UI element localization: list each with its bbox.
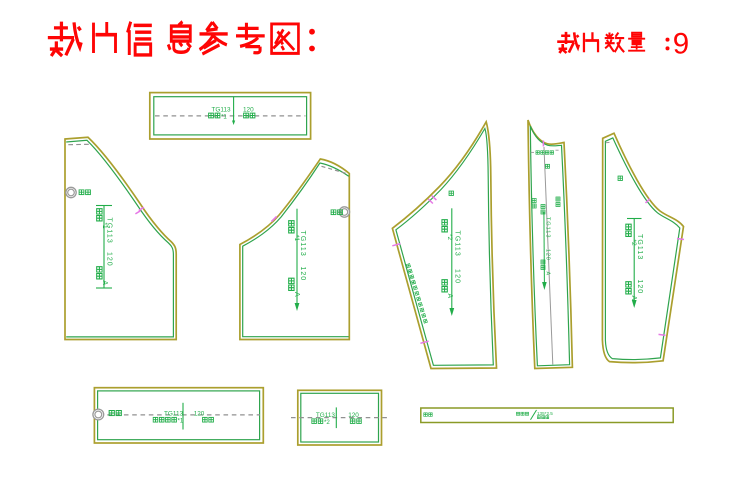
svg-text:A: A	[293, 292, 300, 297]
svg-text:120: 120	[544, 249, 550, 261]
svg-text:TG113: TG113	[454, 231, 461, 257]
svg-text:120: 120	[348, 412, 359, 419]
svg-text:*1: *1	[178, 417, 184, 424]
svg-text:TG113: TG113	[106, 218, 113, 244]
svg-text:A: A	[101, 281, 108, 286]
svg-text:TG113: TG113	[636, 234, 643, 260]
svg-text:135*2.5: 135*2.5	[537, 411, 553, 416]
svg-text:TG113: TG113	[544, 217, 550, 238]
svg-text:120: 120	[636, 280, 643, 295]
svg-text:*2: *2	[324, 419, 330, 426]
svg-text:*1: *1	[221, 113, 227, 120]
svg-text:120: 120	[194, 411, 205, 418]
svg-text:120: 120	[299, 267, 306, 282]
svg-text:9: 9	[673, 27, 689, 60]
svg-text:A: A	[544, 272, 550, 276]
svg-text:120: 120	[106, 252, 113, 267]
svg-text:TG113: TG113	[299, 231, 306, 257]
svg-text:120: 120	[454, 269, 461, 284]
svg-text:A: A	[630, 296, 637, 301]
svg-text:*2: *2	[446, 234, 453, 241]
svg-text:A: A	[446, 294, 453, 299]
svg-text:120: 120	[243, 107, 254, 114]
